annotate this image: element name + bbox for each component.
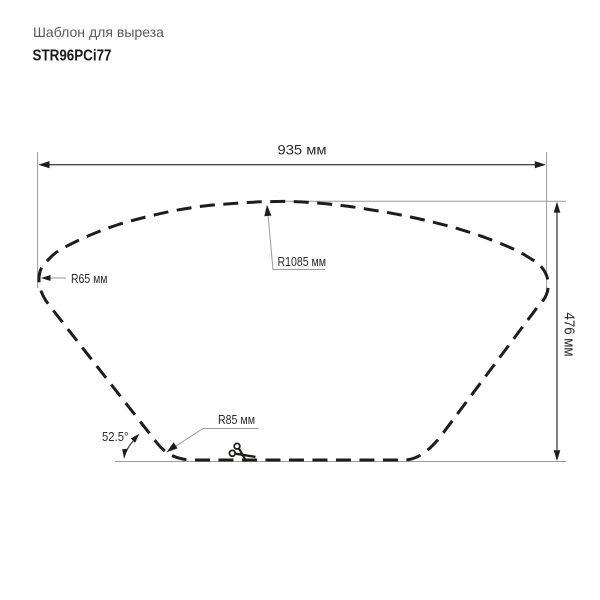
- svg-text:935 мм: 935 мм: [278, 142, 327, 158]
- svg-text:R65 мм: R65 мм: [71, 272, 108, 286]
- svg-text:R1085 мм: R1085 мм: [278, 255, 327, 269]
- svg-text:R85 мм: R85 мм: [218, 413, 255, 427]
- svg-text:Шаблон для выреза: Шаблон для выреза: [33, 24, 164, 40]
- svg-text:52.5°: 52.5°: [102, 430, 129, 444]
- svg-text:STR96PCi77: STR96PCi77: [33, 48, 112, 65]
- svg-text:476 мм: 476 мм: [561, 313, 578, 357]
